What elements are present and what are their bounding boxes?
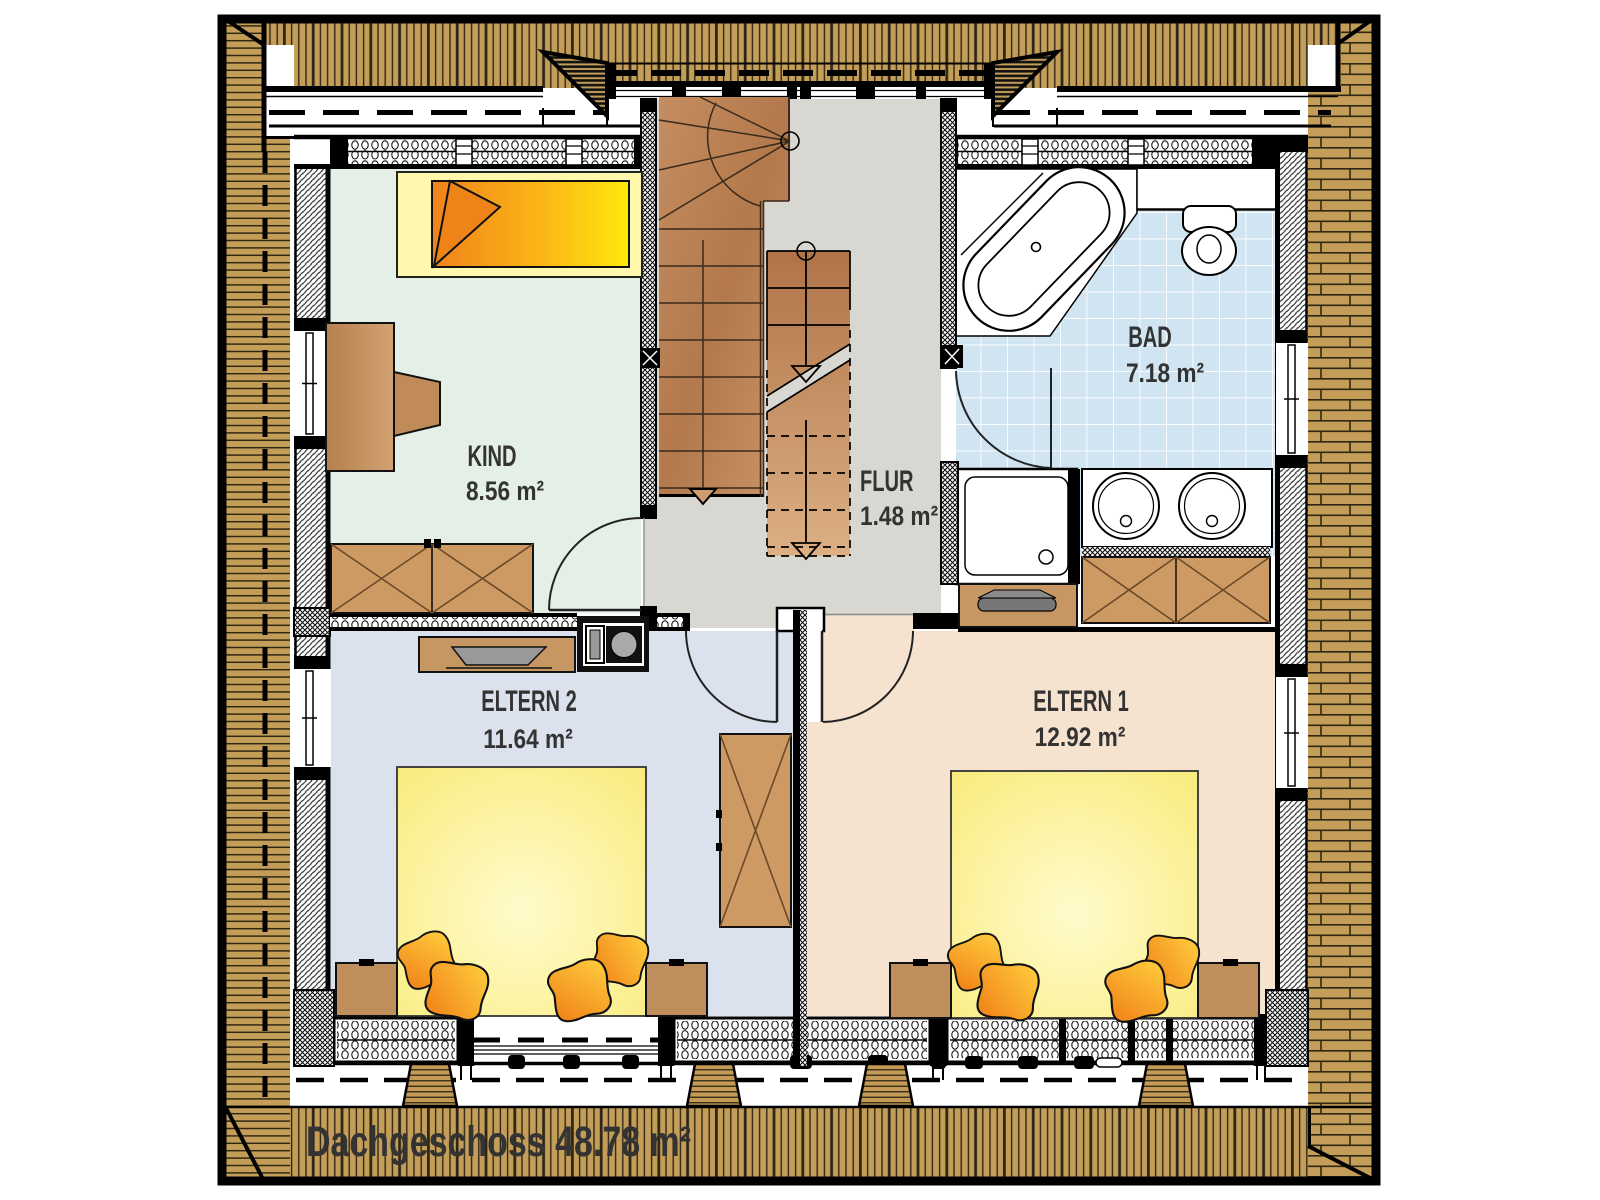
- svg-text:Dachgeschoss 48.78 m²: Dachgeschoss 48.78 m²: [306, 1118, 691, 1166]
- svg-text:11.64 m²: 11.64 m²: [483, 724, 572, 754]
- svg-text:BAD: BAD: [1128, 321, 1172, 354]
- svg-text:KIND: KIND: [467, 440, 516, 473]
- svg-text:12.92 m²: 12.92 m²: [1035, 722, 1126, 752]
- svg-text:ELTERN 1: ELTERN 1: [1033, 685, 1129, 718]
- svg-text:FLUR: FLUR: [860, 465, 914, 498]
- svg-text:8.56 m²: 8.56 m²: [466, 476, 544, 506]
- svg-text:ELTERN 2: ELTERN 2: [481, 685, 577, 718]
- svg-text:1.48 m²: 1.48 m²: [860, 501, 938, 531]
- svg-text:7.18 m²: 7.18 m²: [1126, 358, 1204, 388]
